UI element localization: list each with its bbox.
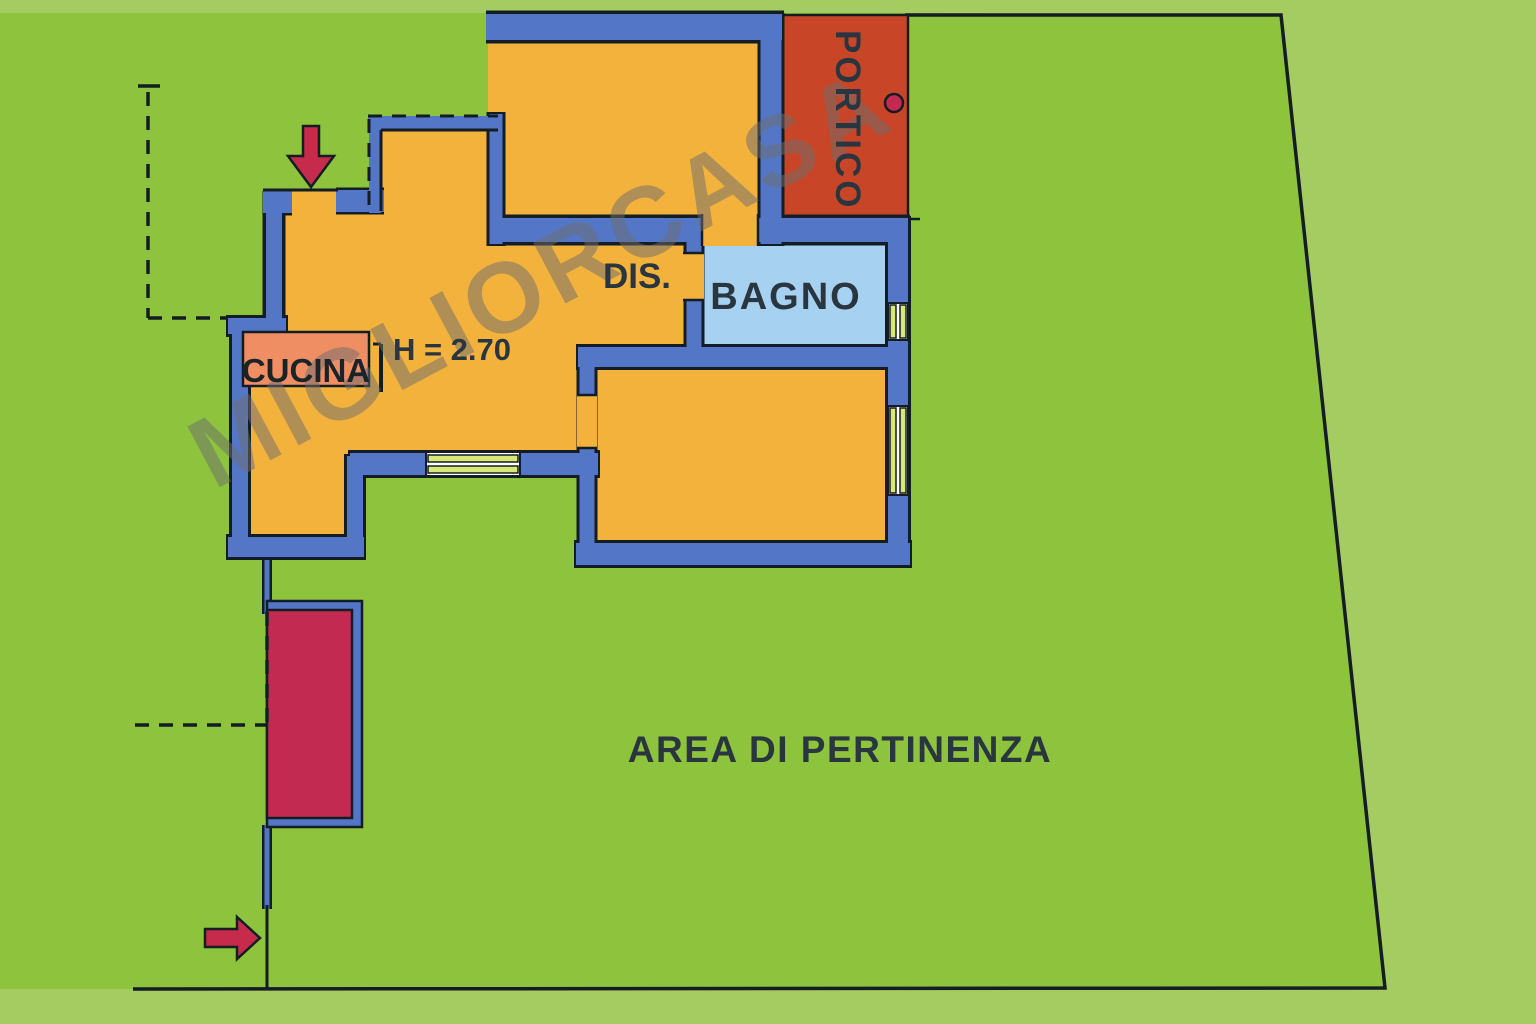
external-structure: [267, 601, 362, 827]
external-structure-body: [267, 610, 352, 818]
label-dis: DIS.: [603, 257, 671, 296]
label-portico: PORTICO: [828, 30, 867, 210]
label-cucina: CUCINA: [242, 352, 370, 389]
window-living: [426, 452, 520, 476]
floorplan-svg: MIGLIORCASA PORTICO BAGNO DIS. CUCINA H …: [0, 0, 1536, 1024]
label-area-pertinenza: AREA DI PERTINENZA: [628, 729, 1052, 770]
floorplan-canvas: MIGLIORCASA PORTICO BAGNO DIS. CUCINA H …: [0, 0, 1536, 1024]
garden-notch: [363, 475, 580, 565]
window-bedroom: [888, 406, 908, 495]
label-bagno: BAGNO: [710, 276, 861, 318]
window-bagno: [888, 303, 908, 340]
label-height: H = 2.70: [393, 332, 511, 367]
